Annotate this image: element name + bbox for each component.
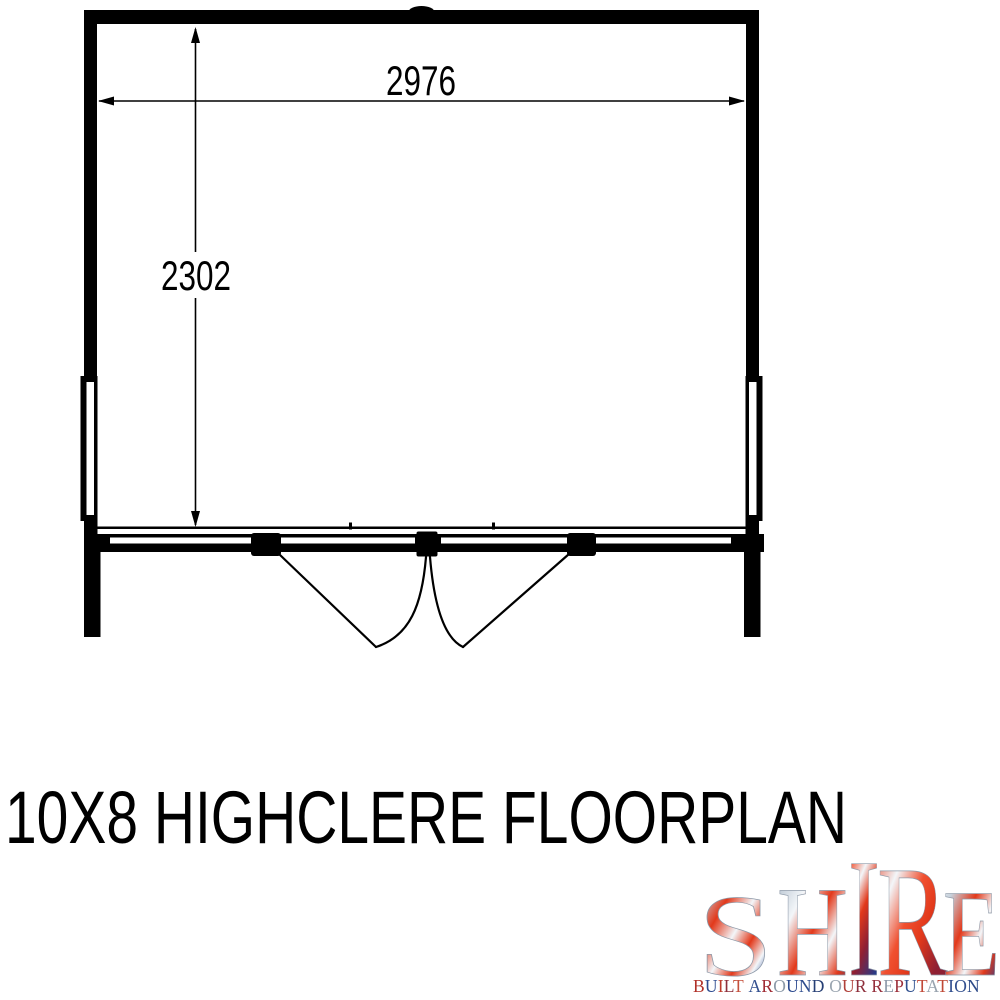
arrowhead-down <box>191 511 200 527</box>
page: 2976 2302 10X8 HIGHCLERE FLOORPLAN SHIRE… <box>0 0 1000 1000</box>
logo-tagline: BUILT AROUND OUR REPUTATION <box>693 976 980 996</box>
bottom-wall <box>90 523 764 557</box>
arrowhead-left <box>98 97 114 106</box>
door-swing-left <box>279 554 426 647</box>
floorplan-drawing: 2976 2302 <box>81 6 765 647</box>
door-hinge-left <box>251 533 281 556</box>
brand-letter-i: I <box>848 824 880 1000</box>
door-leaf-tick-left <box>349 523 352 530</box>
width-dimension-label: 2976 <box>386 57 456 104</box>
floorplan-canvas: 2976 2302 10X8 HIGHCLERE FLOORPLAN SHIRE… <box>0 0 1000 1000</box>
door-leaf-tick-right <box>492 523 495 530</box>
height-dimension-label: 2302 <box>161 252 231 299</box>
arrowhead-up <box>191 27 200 43</box>
door-swing-right <box>430 554 569 647</box>
door-meeting-stile <box>417 532 438 557</box>
door-hinge-right <box>567 533 596 556</box>
height-dimension: 2302 <box>160 27 232 527</box>
page-title: 10X8 HIGHCLERE FLOORPLAN <box>5 776 847 859</box>
arrowhead-right <box>729 97 745 106</box>
left-window <box>81 376 98 521</box>
right-window <box>746 376 763 521</box>
top-wall <box>84 6 759 24</box>
